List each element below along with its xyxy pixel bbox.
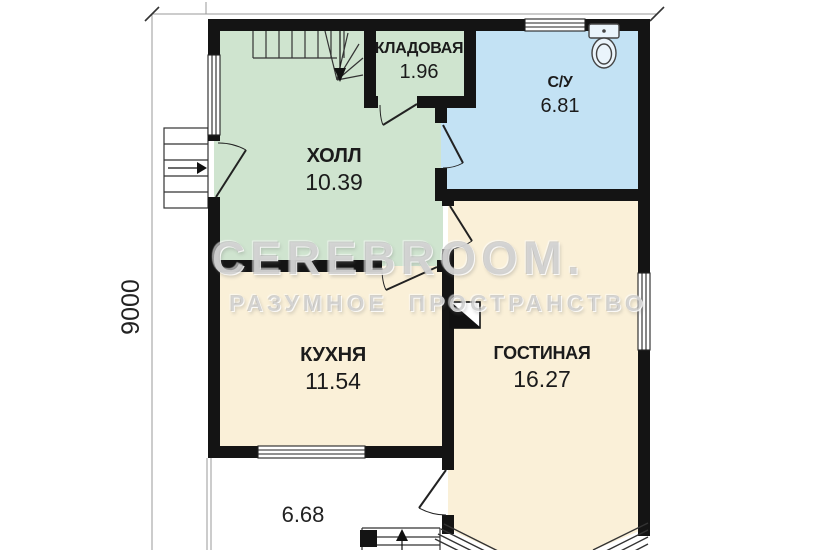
door-terrace (419, 470, 446, 515)
floor-plan-drawing (0, 0, 825, 550)
window-left-hall (208, 55, 220, 135)
window-top-bathroom (525, 19, 585, 31)
window-kitchen-bottom (258, 446, 365, 458)
kitchen-fill (214, 266, 448, 452)
living-room-fill (448, 195, 644, 550)
terrace-edge (207, 458, 211, 550)
entry-steps-left-icon (164, 128, 208, 208)
toilet-icon (589, 24, 619, 68)
entry-steps-bottom-icon (360, 528, 440, 550)
vent-shaft-icon (450, 302, 480, 328)
window-right-living (638, 273, 650, 350)
floor-plan-page: КЛАДОВАЯ 1.96 С/У 6.81 ХОЛЛ 10.39 КУХНЯ … (0, 0, 825, 550)
